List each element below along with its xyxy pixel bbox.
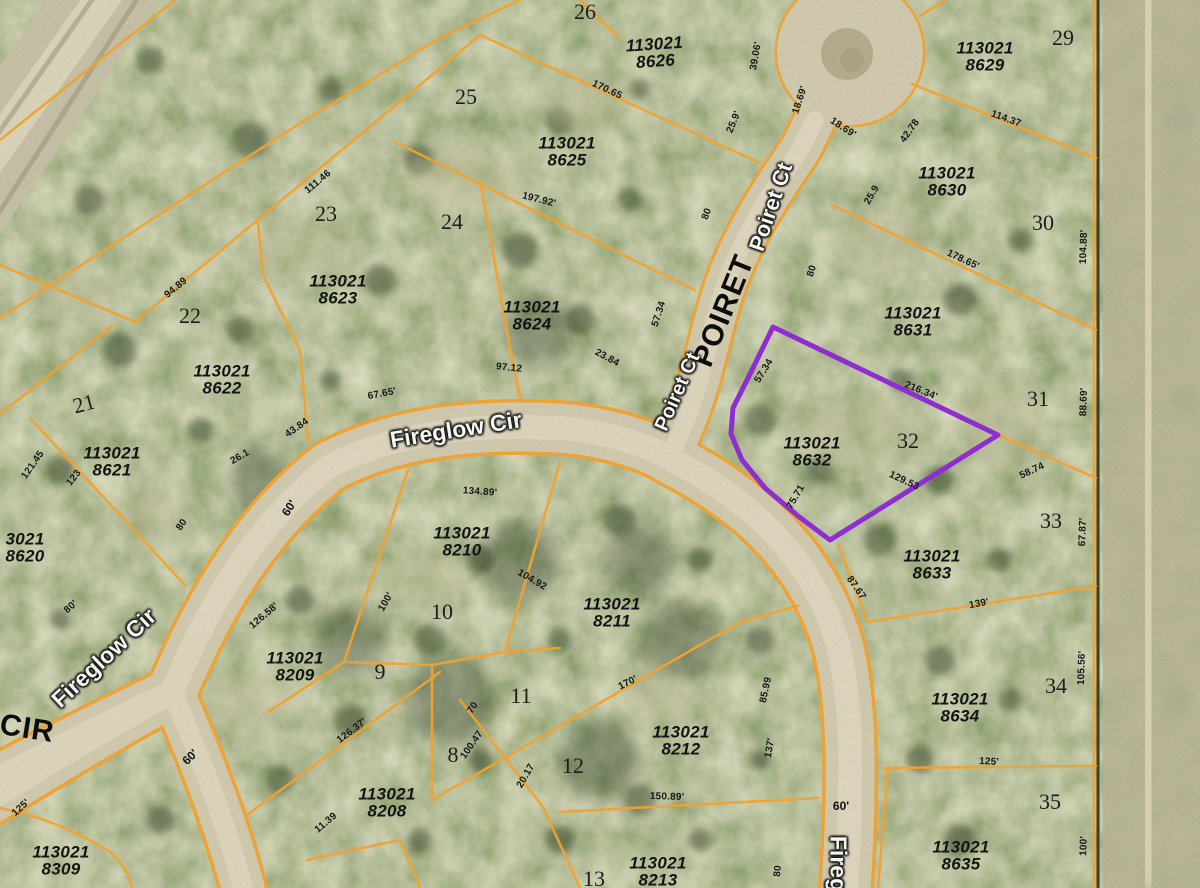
- aerial-imagery: [0, 0, 1200, 888]
- parcel-map-viewport[interactable]: Fireglow CirFireglow CirCIRPOIRETPoiret …: [0, 0, 1200, 888]
